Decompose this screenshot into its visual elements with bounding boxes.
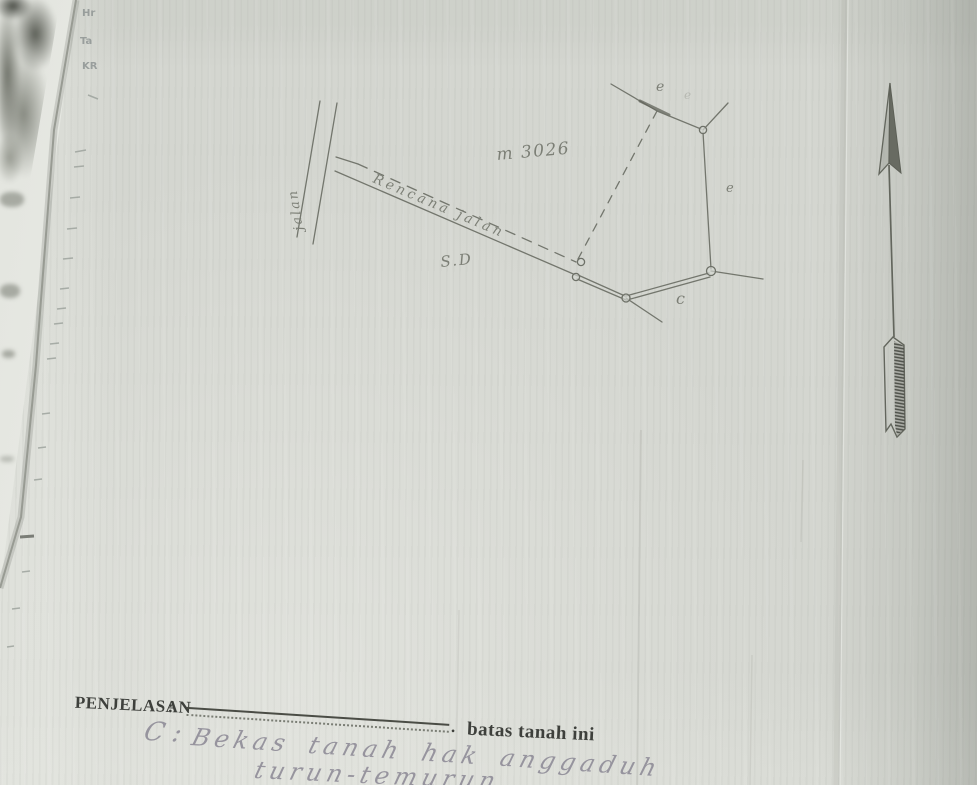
north-arrow-head-left xyxy=(879,83,890,174)
north-arrow xyxy=(879,83,905,437)
sketch-drawing-layer: Hr Ta KR xyxy=(0,0,977,785)
north-arrow-fletching-fill xyxy=(894,341,905,435)
survey-points xyxy=(572,126,715,302)
planned-road-label: Rencana jalan xyxy=(370,171,508,242)
point-label-e-top: e xyxy=(656,79,664,95)
edge-margin-marks: Hr Ta KR xyxy=(80,8,98,72)
point-label-e-faint: e xyxy=(684,88,691,102)
point-label-e-right: e xyxy=(726,181,734,196)
vertical-crease xyxy=(837,0,848,785)
scanned-land-sketch-document: Hr Ta KR xyxy=(0,0,977,785)
margin-mark-2: Ta xyxy=(80,36,92,47)
left-fold-crease xyxy=(0,0,76,588)
margin-mark-1: Hr xyxy=(82,8,95,19)
scan-streaks xyxy=(456,430,803,785)
parcel-boundary xyxy=(577,84,763,322)
sd-label: S.D xyxy=(440,250,474,271)
margin-mark-3: KR xyxy=(82,61,98,72)
point-label-c: c xyxy=(676,289,685,308)
north-arrow-shaft xyxy=(889,165,894,337)
north-arrow-head-right xyxy=(889,83,901,173)
land-sketch xyxy=(297,84,763,322)
area-label: m 3026 xyxy=(496,139,571,165)
